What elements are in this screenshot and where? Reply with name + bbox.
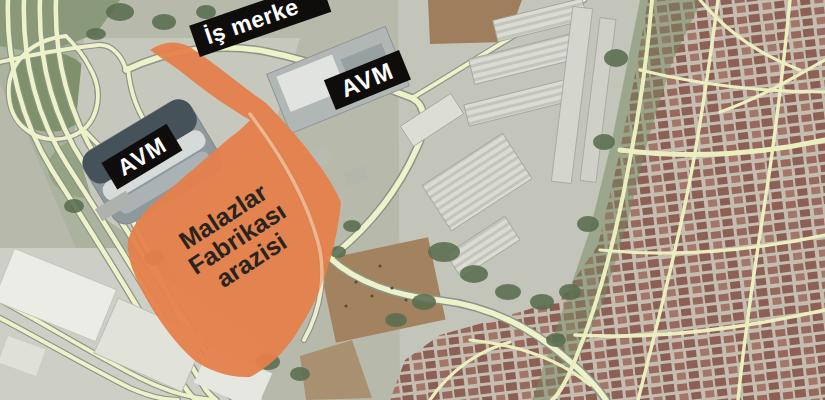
map-root: İş merke AVM AVM Malazlar Fabrikası araz… [0,0,825,400]
satellite-map [0,0,825,400]
